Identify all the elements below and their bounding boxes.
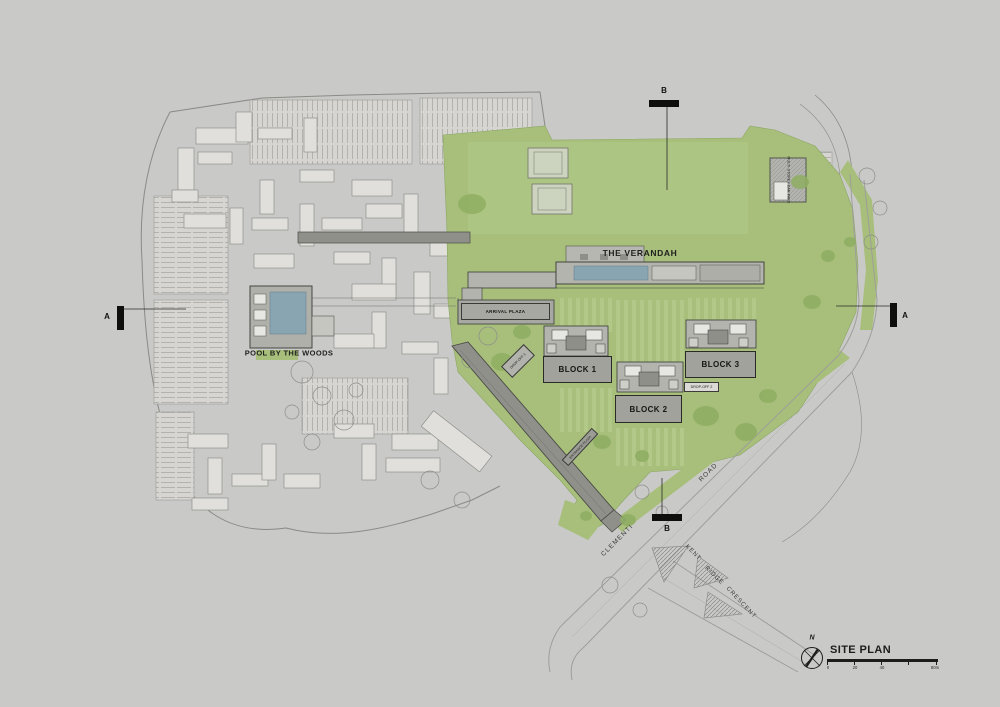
drop-off-2-label: DROP-OFF 2 — [684, 382, 719, 392]
block1-label: BLOCK 1 — [543, 356, 612, 383]
north-label: N — [809, 635, 814, 642]
site-plan-page: THE VERANDAH BLOCK 1 BLOCK 2 BLOCK 3 POO… — [0, 0, 1000, 707]
scale-bar-line — [827, 659, 938, 662]
scale-tick-80m: 80m — [931, 665, 939, 670]
section-a-left-letter: A — [104, 313, 110, 321]
scale-tick-40: 40 — [880, 665, 885, 670]
block1-footprint — [544, 326, 608, 356]
scale-bar: 0 20 40 80m — [827, 656, 939, 670]
pool-by-woods-label: POOL BY THE WOODS — [245, 349, 334, 357]
arrival-plaza-label: ARRIVAL PLAZA — [461, 303, 550, 320]
section-b-bottom-bar — [652, 514, 682, 521]
carpark-label: MULTI-STOREY CAR PARK — [786, 156, 789, 203]
scale-tick-20: 20 — [853, 665, 858, 670]
scale-tick-0: 0 — [827, 665, 829, 670]
drawing-title: SITE PLAN — [830, 644, 891, 656]
section-b-top-letter: B — [661, 87, 667, 95]
block3-footprint — [686, 320, 756, 348]
verandah-label: THE VERANDAH — [603, 249, 678, 258]
section-a-right-letter: A — [902, 312, 908, 320]
section-a-right-bar — [890, 303, 897, 327]
section-a-left-bar — [117, 306, 124, 330]
section-b-top-bar — [649, 100, 679, 107]
block2-footprint — [617, 362, 683, 392]
site-plan-drawing — [0, 0, 1000, 707]
block3-label: BLOCK 3 — [685, 351, 756, 378]
section-b-bottom-letter: B — [664, 525, 670, 533]
block2-label: BLOCK 2 — [615, 395, 682, 423]
